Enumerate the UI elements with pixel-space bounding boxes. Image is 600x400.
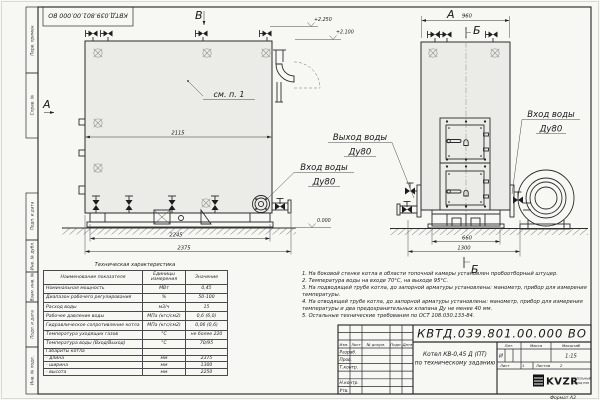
side-view: 2115 bbox=[42, 9, 354, 255]
title-block: КВТД.039.801.00.000 ВО Изм. Лист № докум… bbox=[338, 325, 591, 400]
inlet-callout-line1: Вход воды bbox=[300, 163, 348, 173]
role-utv: Утв. bbox=[340, 388, 349, 394]
outlet-callout-line1: Выход воды bbox=[333, 133, 387, 143]
technical-notes: 1. На боковой стенке котла в области топ… bbox=[302, 271, 590, 320]
note-2: 2. Температура воды на входе 70°С, на вы… bbox=[302, 278, 590, 285]
drawing-sheet: Перв. примен. Справ. № Подп. и дата Инв.… bbox=[0, 0, 600, 400]
valve-icon bbox=[440, 31, 452, 42]
lit-value: И bbox=[499, 354, 503, 360]
valve-icon bbox=[428, 31, 440, 42]
header-scale: Масштаб bbox=[562, 343, 581, 348]
spec-table-block: Техническая характеристика Наименование … bbox=[43, 262, 227, 376]
col-data: Дата bbox=[402, 342, 414, 347]
spec-row: - длинамм2375 bbox=[44, 355, 228, 362]
inlet-right-callout-line1: Вход воды bbox=[527, 110, 575, 120]
valve-icon bbox=[486, 31, 498, 42]
role-nkontr: Н.контр. bbox=[340, 380, 359, 386]
view-letter-A-side: А bbox=[42, 98, 51, 111]
see-note-callout: см. п. 1 bbox=[214, 90, 245, 99]
view-letter-A-front: А bbox=[446, 8, 455, 21]
role-prov: Пров. bbox=[340, 357, 353, 363]
elevation-2250: +2.250 bbox=[314, 17, 332, 23]
valve-icon bbox=[101, 30, 113, 41]
header-mass: Масса bbox=[530, 343, 543, 348]
spec-row: Диапазон рабочего регулирования%50-100 bbox=[44, 293, 228, 302]
dim-660: 660 bbox=[462, 236, 473, 242]
doc-name-line2: по техническому заданию bbox=[415, 361, 496, 367]
margin-label-sprav: Справ. № bbox=[30, 94, 35, 115]
dim-2115: 2115 bbox=[171, 131, 185, 137]
margin-label-inv-podl: Инв. № подл. bbox=[30, 356, 35, 385]
blower-fan bbox=[518, 170, 574, 229]
spec-header-row: Наименование показателя Единицы измерени… bbox=[44, 271, 228, 285]
dim-2245: 2245 bbox=[169, 233, 183, 239]
sheets-label: Листов bbox=[535, 363, 551, 368]
logo-sub2: ЗАВОД РЭП bbox=[572, 381, 589, 385]
sheets-value: 2 bbox=[560, 363, 563, 368]
kvzr-logo: KVZR КОТЕЛЬНЫЙ ЗАВОД РЭП bbox=[533, 375, 591, 388]
chimney bbox=[273, 50, 320, 102]
dim-960: 960 bbox=[462, 14, 473, 20]
sheet-label: Лист bbox=[499, 363, 510, 368]
note-5: 5. Остальные технические требования по О… bbox=[302, 313, 590, 320]
dim-1300: 1300 bbox=[457, 246, 471, 252]
front-view: А 960 Б bbox=[328, 8, 588, 276]
boiler-body-front bbox=[421, 42, 510, 210]
spec-header-value: Значение bbox=[186, 271, 228, 285]
logo-sub1: КОТЕЛЬНЫЙ bbox=[572, 376, 591, 381]
section-letter-B-top: Б bbox=[473, 24, 481, 37]
outlet-piping bbox=[397, 183, 421, 217]
margin-label-podp-data-2: Подп. и дата bbox=[30, 310, 35, 339]
spec-row: - ширинамм1300 bbox=[44, 362, 228, 369]
role-razrab: Разраб. bbox=[340, 350, 357, 356]
scale-value: 1:15 bbox=[565, 354, 577, 360]
doc-name-line1: Котел КВ-0,45 Д (ПТ) bbox=[423, 352, 487, 358]
outlet-callout-line2: Ду80 bbox=[348, 148, 372, 158]
spec-header-units: Единицы измерения bbox=[143, 271, 186, 285]
spec-row: Номинальная мощностьМВт0,45 bbox=[44, 284, 228, 293]
spec-row: - высотамм2250 bbox=[44, 369, 228, 376]
margin-label-perv-primen: Перв. примен. bbox=[30, 24, 35, 55]
role-tkontr: Т.контр. bbox=[340, 365, 359, 371]
inlet-callout-line2: Ду80 bbox=[312, 178, 336, 188]
note-1: 1. На боковой стенке котла в области топ… bbox=[302, 271, 590, 278]
elevation-2100: +2.100 bbox=[336, 30, 354, 36]
spec-row: Гидравлическое сопротивление котлаМПа (к… bbox=[44, 321, 228, 330]
format-label: Формат А3 bbox=[550, 395, 576, 400]
inlet-right-callout-line2: Ду80 bbox=[539, 125, 563, 135]
dim-2375: 2375 bbox=[177, 246, 191, 252]
margin-label-podp-data-1: Подп. и дата bbox=[30, 201, 35, 230]
sheet-value: 1 bbox=[522, 363, 524, 368]
base-frame-front bbox=[428, 210, 504, 228]
spec-table-title: Техническая характеристика bbox=[43, 262, 227, 268]
valve-icon bbox=[275, 199, 285, 211]
title-block-designation: КВТД.039.801.00.000 ВО bbox=[417, 327, 587, 341]
margin-label-vzam-inv: Взам. инв. № bbox=[30, 272, 35, 301]
spec-row: Рабочее давление водыМПа (кгс/см2)0,6 (6… bbox=[44, 312, 228, 321]
margin-label-inv-dubl: Инв. № дубл. bbox=[30, 242, 35, 271]
spec-row: Температура уходящих газов°Сне более 220 bbox=[44, 330, 228, 339]
margin-column: Перв. примен. Справ. № Подп. и дата Инв.… bbox=[26, 7, 38, 394]
spec-row: Температура воды (Вход/Выход)°С70/95 bbox=[44, 339, 228, 348]
boiler-body-side bbox=[85, 41, 272, 213]
valve-icon bbox=[260, 30, 272, 41]
note-3: 3. На подводящей трубе котла, до запорно… bbox=[302, 285, 590, 298]
note-4: 4. На отводящей трубе котла, до запорной… bbox=[302, 299, 590, 312]
col-podp: Подп. bbox=[390, 342, 402, 347]
elevation-zero: 0.000 bbox=[317, 218, 331, 224]
valve-icon bbox=[86, 30, 98, 41]
header-lit: Лит. bbox=[504, 343, 514, 348]
spec-header-name: Наименование показателя bbox=[44, 271, 143, 285]
spec-table: Наименование показателя Единицы измерени… bbox=[43, 270, 228, 376]
col-list: Лист bbox=[350, 342, 361, 347]
spec-row: Габариты котла bbox=[44, 348, 228, 355]
corner-designation-box: КВТД.039.801.00.000 ВО bbox=[43, 7, 133, 26]
view-letter-B-top: В bbox=[195, 9, 203, 22]
base-frame-side bbox=[87, 210, 273, 227]
corner-designation-text: КВТД.039.801.00.000 ВО bbox=[48, 12, 128, 19]
col-doc: № докум. bbox=[366, 342, 386, 347]
valve-icon bbox=[196, 30, 208, 41]
col-izm: Изм. bbox=[340, 342, 349, 347]
spec-row: Расход водым3/ч15 bbox=[44, 302, 228, 311]
